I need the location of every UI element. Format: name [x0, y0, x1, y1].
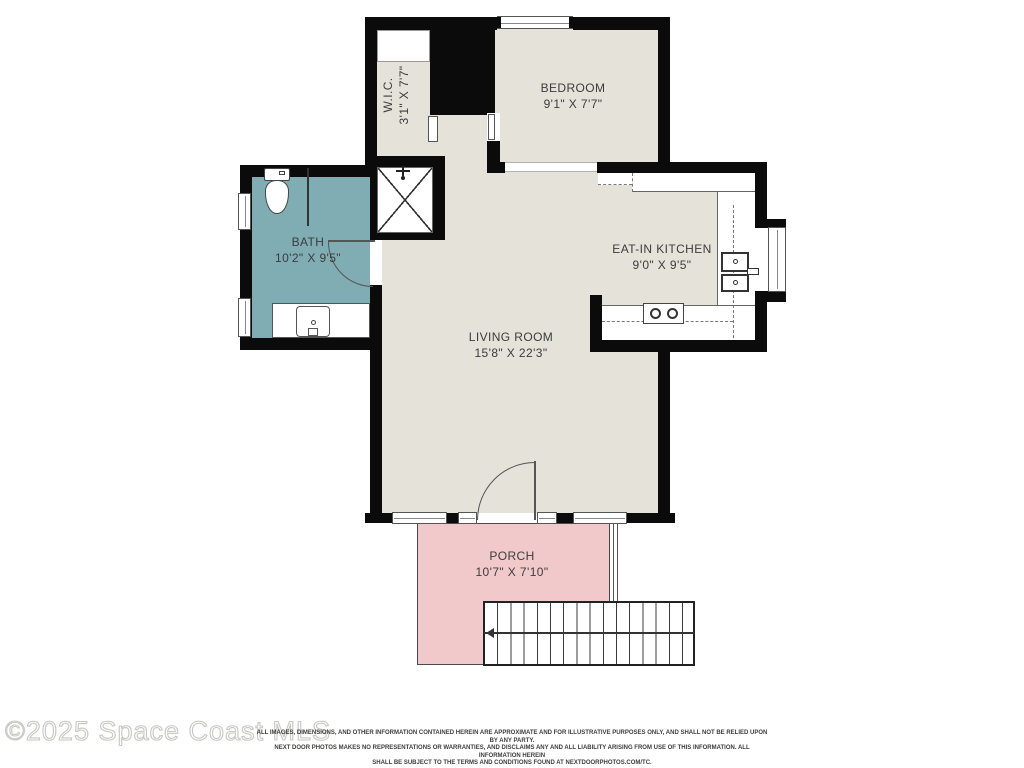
disclaimer-line: NEXT DOOR PHOTOS MAKES NO REPRESENTATION…: [253, 745, 771, 760]
room-name: W.I.C.: [380, 66, 396, 125]
wall: [658, 352, 670, 523]
wall: [590, 295, 602, 340]
wall: [370, 350, 382, 523]
wall: [573, 17, 670, 30]
wall: [365, 17, 377, 163]
window-icon: [238, 298, 251, 337]
stove-burner-icon: [650, 308, 661, 319]
room-label-porch: PORCH 10'7" X 7'10": [475, 548, 548, 580]
wall: [557, 513, 573, 523]
wall: [590, 340, 767, 352]
shower-head-icon: [402, 166, 404, 176]
room-name: PORCH: [475, 548, 548, 564]
room-name: EAT-IN KITCHEN: [612, 241, 711, 257]
sink-drain: [308, 328, 318, 336]
window-icon: [768, 227, 786, 292]
stairs-midline: [484, 632, 694, 634]
disclaimer-line: SHALL BE SUBJECT TO THE TERMS AND CONDIT…: [253, 760, 771, 768]
porch-rail-line: [613, 523, 614, 601]
window-icon: [537, 512, 557, 524]
wall-solid-block: [430, 17, 495, 115]
disclaimer: ALL IMAGES, DIMENSIONS, AND OTHER INFORM…: [253, 730, 771, 768]
wall: [447, 513, 458, 523]
wall: [487, 162, 505, 173]
closet-door-leaf: [428, 116, 438, 142]
closet-shelf: [377, 30, 430, 62]
window-icon: [573, 512, 627, 524]
upper-cabinet: [598, 173, 632, 185]
sink-faucet-dot: [311, 320, 316, 325]
toilet-flush-handle: [279, 171, 285, 175]
counter: [632, 173, 755, 192]
fridge-knob: [733, 280, 738, 285]
bedroom-opening: [505, 162, 597, 172]
window-icon: [497, 16, 573, 29]
room-dims: 10'2" X 9'5": [275, 250, 341, 266]
floorplan: W.I.C. 3'1" X 7'7" BEDROOM 9'1" X 7'7" B…: [0, 0, 1024, 768]
room-dims: 15'8" X 22'3": [469, 345, 553, 361]
stove-burner-icon: [667, 308, 678, 319]
window-icon: [392, 512, 447, 524]
fridge-knob: [733, 259, 738, 264]
porch-rail-line: [617, 523, 618, 601]
bedroom-door-leaf: [488, 114, 495, 140]
disclaimer-line: ALL IMAGES, DIMENSIONS, AND OTHER INFORM…: [253, 730, 771, 745]
room-label-wic: W.I.C. 3'1" X 7'7": [380, 66, 412, 125]
room-dims: 3'1" X 7'7": [396, 66, 412, 125]
room-name: BATH: [275, 234, 341, 250]
room-dims: 9'0" X 9'5": [612, 257, 711, 273]
room-dims: 10'7" X 7'10": [475, 564, 548, 580]
wall: [240, 338, 382, 350]
wall: [240, 165, 382, 177]
wall: [370, 285, 382, 350]
room-label-living: LIVING ROOM 15'8" X 22'3": [469, 329, 553, 361]
room-label-bedroom: BEDROOM 9'1" X 7'7": [541, 80, 606, 112]
fridge-handle: [747, 268, 759, 275]
room-name: LIVING ROOM: [469, 329, 553, 345]
window-cap: [497, 17, 501, 28]
window-icon: [458, 512, 477, 524]
window-cap: [569, 17, 573, 28]
room-label-kitchen: EAT-IN KITCHEN 9'0" X 9'5": [612, 241, 711, 273]
entry-door-leaf: [534, 461, 536, 520]
wall: [627, 513, 675, 523]
wall: [433, 156, 445, 240]
wall: [597, 162, 767, 173]
stairs-direction-arrow-icon: [486, 628, 494, 638]
room-dims: 9'1" X 7'7": [541, 96, 606, 112]
bath-partition-wall: [307, 168, 309, 226]
wall: [755, 173, 767, 220]
shower-head-icon: [401, 176, 405, 180]
wall: [370, 233, 445, 240]
shower-stall: [377, 167, 433, 233]
room-label-bath: BATH 10'2" X 9'5": [275, 234, 341, 266]
wall: [658, 17, 670, 162]
window-icon: [238, 193, 251, 230]
room-name: BEDROOM: [541, 80, 606, 96]
wall: [365, 513, 392, 523]
